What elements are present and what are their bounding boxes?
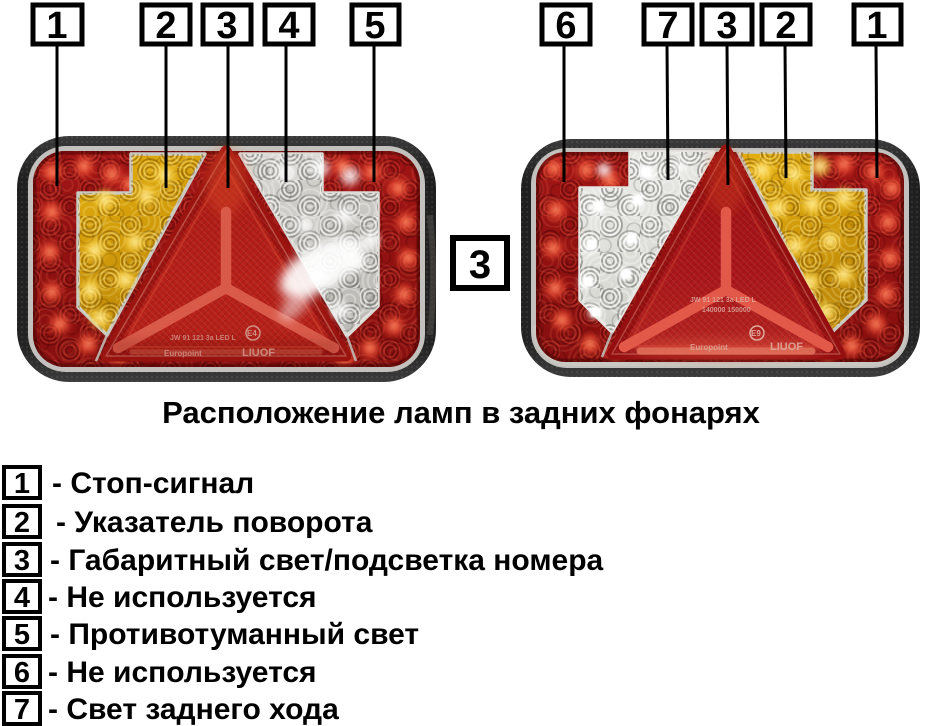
svg-text:1: 1 xyxy=(46,5,67,47)
svg-text:6: 6 xyxy=(14,657,30,689)
svg-text:LIUOF: LIUOF xyxy=(242,347,275,359)
svg-text:- Габаритный свет/подсветка но: - Габаритный свет/подсветка номера xyxy=(50,544,604,577)
svg-text:140000 150000: 140000 150000 xyxy=(702,307,751,314)
svg-text:JW 91 121 3a LED L: JW 91 121 3a LED L xyxy=(690,297,756,304)
svg-text:E9: E9 xyxy=(751,329,761,338)
svg-text:2: 2 xyxy=(155,5,176,47)
svg-text:- Стоп-сигнал: - Стоп-сигнал xyxy=(52,467,254,500)
svg-text:6: 6 xyxy=(555,5,576,47)
svg-text:3: 3 xyxy=(716,5,737,47)
svg-text:- Противотуманный свет: - Противотуманный свет xyxy=(50,618,419,651)
svg-text:3: 3 xyxy=(14,545,30,577)
svg-text:1: 1 xyxy=(866,5,887,47)
svg-text:5: 5 xyxy=(364,5,385,47)
svg-text:2: 2 xyxy=(14,507,30,539)
svg-text:Europoint: Europoint xyxy=(164,349,202,358)
svg-text:4: 4 xyxy=(14,582,30,614)
svg-text:E4: E4 xyxy=(247,329,257,338)
svg-text:- Не используется: - Не используется xyxy=(48,656,317,689)
svg-text:LIUOF: LIUOF xyxy=(770,341,803,353)
svg-text:3: 3 xyxy=(216,5,237,47)
svg-text:- Свет заднего хода: - Свет заднего хода xyxy=(48,693,339,726)
svg-text:Europoint: Europoint xyxy=(690,343,728,352)
svg-text:2: 2 xyxy=(775,5,796,47)
svg-text:5: 5 xyxy=(14,619,30,651)
svg-text:Расположение ламп в задних фон: Расположение ламп в задних фонарях xyxy=(162,395,761,430)
svg-text:4: 4 xyxy=(278,5,299,47)
svg-text:- Указатель поворота: - Указатель поворота xyxy=(56,506,373,539)
svg-text:7: 7 xyxy=(14,694,30,726)
svg-text:1: 1 xyxy=(14,468,30,500)
svg-text:- Не используется: - Не используется xyxy=(48,581,317,614)
svg-text:3: 3 xyxy=(469,243,491,287)
svg-text:JW 91 121 3a LED L: JW 91 121 3a LED L xyxy=(170,335,236,342)
svg-text:7: 7 xyxy=(657,5,678,47)
